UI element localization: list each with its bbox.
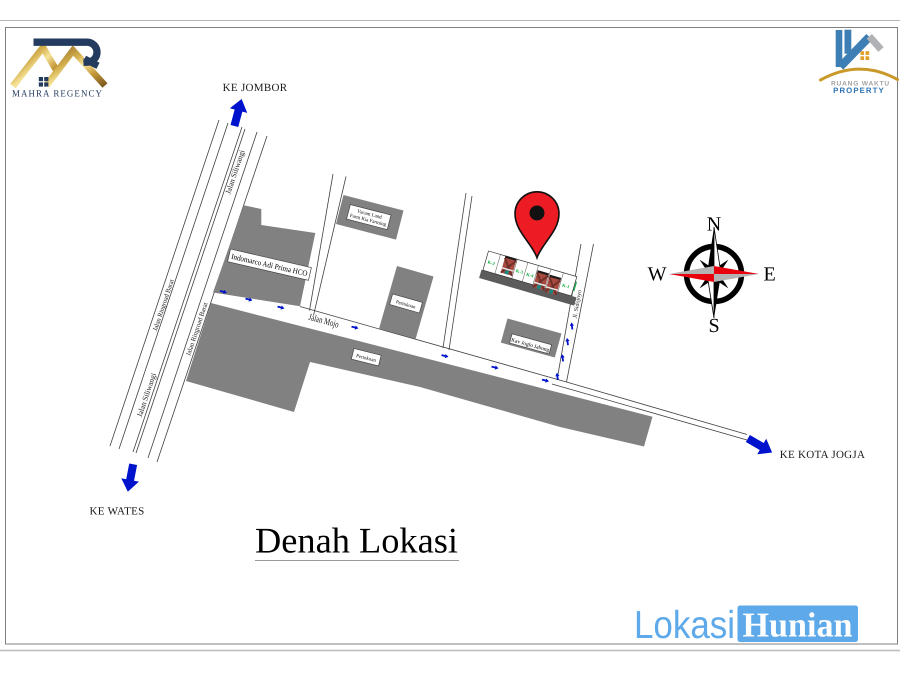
svg-text:E: E bbox=[764, 264, 776, 286]
svg-text:KE WATES: KE WATES bbox=[89, 506, 144, 518]
svg-text:KE KOTA JOGJA: KE KOTA JOGJA bbox=[780, 449, 866, 461]
svg-text:Hunian: Hunian bbox=[743, 606, 853, 645]
svg-text:Denah Lokasi: Denah Lokasi bbox=[255, 521, 458, 561]
svg-text:KE JOMBOR: KE JOMBOR bbox=[223, 82, 288, 94]
svg-text:PROPERTY: PROPERTY bbox=[833, 86, 885, 95]
svg-text:W: W bbox=[648, 264, 667, 286]
svg-text:N: N bbox=[707, 214, 721, 236]
svg-text:Lokasi: Lokasi bbox=[634, 604, 735, 647]
svg-text:MAHRA REGENCY: MAHRA REGENCY bbox=[12, 89, 103, 100]
svg-text:S: S bbox=[708, 315, 719, 337]
